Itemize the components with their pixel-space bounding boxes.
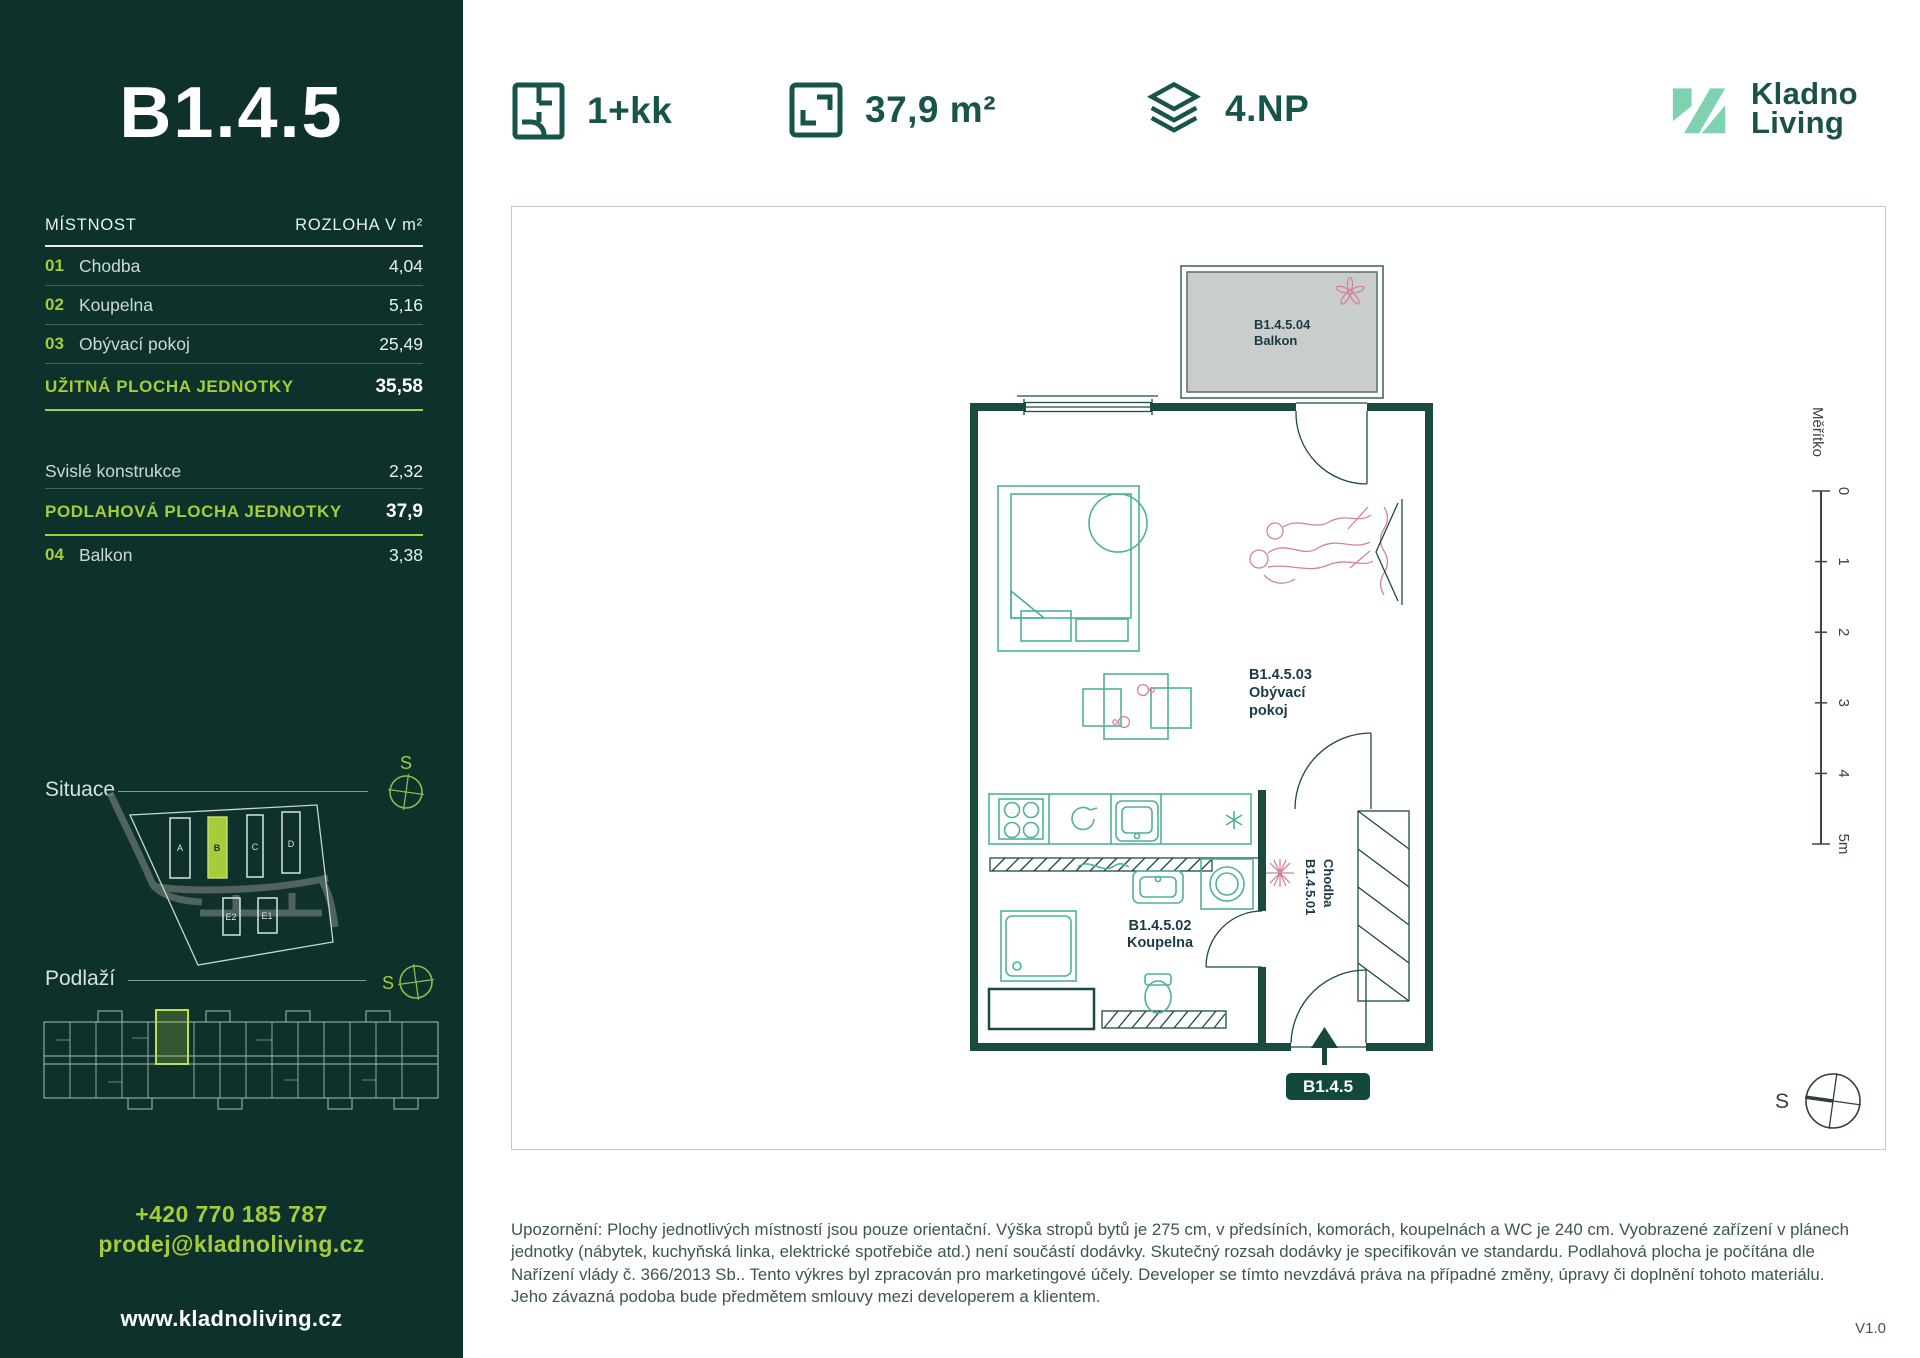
row-area: 3,38 <box>389 545 423 566</box>
flyer-page: B1.4.5 MÍSTNOST ROZLOHA V m² 01 Chodba 4… <box>0 0 1920 1358</box>
plan-compass-icon: S <box>1775 1069 1865 1132</box>
row-name: Obývací pokoj <box>79 334 190 355</box>
bath-wall-hatch-bottom <box>1102 1011 1226 1028</box>
brand-logo: Kladno Living <box>1671 78 1858 138</box>
svg-text:4: 4 <box>1835 769 1852 777</box>
main-area: 1+kk 37,9 m² 4.NP <box>463 0 1920 1358</box>
window-strip <box>1017 396 1158 415</box>
cups <box>1113 685 1154 728</box>
situace-map: A B C D E2 E1 S <box>40 755 460 967</box>
contact-block: +420 770 185 787 prodej@kladnoliving.cz … <box>0 1199 463 1332</box>
situace-compass-icon: S <box>386 755 427 812</box>
table-row: 01 Chodba 4,04 <box>45 247 423 286</box>
floor-area-label: PODLAHOVÁ PLOCHA JEDNOTKY <box>45 502 342 522</box>
hall-plant-icon <box>1266 859 1294 887</box>
balcony-name-label: Balkon <box>1254 333 1297 348</box>
bath-name-label: Koupelna <box>1127 935 1194 951</box>
bed <box>998 486 1139 651</box>
podlazi-unit-highlight <box>156 1010 188 1064</box>
brand-line-2: Living <box>1751 108 1858 137</box>
living-name-label-2: pokoj <box>1249 703 1288 719</box>
layout-value: 1+kk <box>587 90 672 132</box>
row-number: 04 <box>45 545 79 565</box>
floor-area-row: PODLAHOVÁ PLOCHA JEDNOTKY 37,9 <box>45 489 423 536</box>
balcony-door <box>1296 403 1367 484</box>
hall-code-label: B1.4.5.01 <box>1303 859 1318 915</box>
bath-code-label: B1.4.5.02 <box>1129 918 1192 934</box>
room-table: MÍSTNOST ROZLOHA V m² 01 Chodba 4,04 02 … <box>45 216 423 574</box>
unit-code-title: B1.4.5 <box>0 72 463 154</box>
layout-meta: 1+kk <box>512 82 672 140</box>
table-row: 03 Obývací pokoj 25,49 <box>45 325 423 364</box>
email-link[interactable]: prodej@kladnoliving.cz <box>0 1229 463 1259</box>
svg-text:1: 1 <box>1835 557 1852 565</box>
svg-text:S: S <box>400 755 412 773</box>
floor-meta: 4.NP <box>1145 78 1309 140</box>
area-meta: 37,9 m² <box>789 82 996 138</box>
hall-name-label: Chodba <box>1321 859 1336 908</box>
podlazi-floor-map <box>36 1000 448 1136</box>
col-room: MÍSTNOST <box>45 216 137 235</box>
brand-line-1: Kladno <box>1751 79 1858 108</box>
room-table-header: MÍSTNOST ROZLOHA V m² <box>45 216 423 247</box>
kladno-living-mark-icon <box>1671 78 1729 138</box>
svg-text:3: 3 <box>1835 699 1852 707</box>
layers-icon <box>1145 78 1203 140</box>
row-name: Chodba <box>79 256 140 277</box>
brand-logo-text: Kladno Living <box>1751 79 1858 137</box>
curtain-decor <box>1381 507 1388 595</box>
living-code-label: B1.4.5.03 <box>1249 667 1312 683</box>
svg-text:E2: E2 <box>225 912 236 922</box>
floor-value: 4.NP <box>1225 88 1309 130</box>
area-icon <box>789 82 843 138</box>
col-area: ROZLOHA V m² <box>295 216 423 235</box>
podlazi-label: Podlaží <box>45 967 115 991</box>
scale-title: Měřítko <box>1809 407 1826 457</box>
row-number: 03 <box>45 334 79 354</box>
floor-area-value: 37,9 <box>386 501 423 523</box>
svg-text:A: A <box>177 843 183 853</box>
phone-link[interactable]: +420 770 185 787 <box>0 1199 463 1229</box>
sidebar: B1.4.5 MÍSTNOST ROZLOHA V m² 01 Chodba 4… <box>0 0 463 1358</box>
dining-table <box>1083 674 1191 739</box>
outer-walls <box>970 403 1433 1051</box>
row-number: 02 <box>45 295 79 315</box>
svg-text:C: C <box>252 842 259 852</box>
toilet <box>1145 974 1171 1013</box>
row-number: 01 <box>45 256 79 276</box>
disclaimer-text: Upozornění: Plochy jednotlivých místnost… <box>511 1219 1857 1308</box>
svg-text:B: B <box>214 843 221 853</box>
svg-text:S: S <box>382 973 394 993</box>
table-row: 02 Koupelna 5,16 <box>45 286 423 325</box>
fridge-snowflake-icon <box>1226 811 1242 829</box>
entry-arrow-icon <box>1311 1027 1338 1065</box>
row-area: 5,16 <box>389 295 423 316</box>
right-window-marker <box>1376 499 1402 605</box>
svg-text:5m: 5m <box>1835 834 1852 855</box>
svg-text:2: 2 <box>1835 628 1852 636</box>
svg-text:D: D <box>288 839 295 849</box>
podlazi-divider <box>128 980 366 981</box>
interior-walls <box>989 790 1262 1047</box>
version-label: V1.0 <box>511 1320 1886 1337</box>
kitchen-counter <box>989 794 1251 844</box>
floorplan-icon <box>512 82 565 140</box>
people-illustration <box>1250 507 1373 583</box>
hall-door <box>1295 733 1371 809</box>
balcony-code-label: B1.4.5.04 <box>1254 317 1311 332</box>
usable-area-value: 35,58 <box>375 376 423 398</box>
area-value: 37,9 m² <box>865 89 996 131</box>
scale-bar: Měřítko 0 1 2 3 4 5m <box>1809 407 1852 854</box>
washbasin <box>1133 871 1183 903</box>
website-link[interactable]: www.kladnoliving.cz <box>0 1306 463 1332</box>
svg-text:0: 0 <box>1835 487 1852 495</box>
svg-text:E1: E1 <box>261 911 272 921</box>
svg-text:S: S <box>1775 1090 1789 1113</box>
usable-area-row: UŽITNÁ PLOCHA JEDNOTKY 35,58 <box>45 364 423 411</box>
floorplan-drawing: B1.4.5.04 Balkon <box>512 207 1884 1148</box>
vertical-structures-row: Svislé konstrukce 2,32 <box>45 454 423 489</box>
row-name: Balkon <box>79 545 133 566</box>
living-name-label-1: Obývací <box>1249 685 1306 701</box>
vertical-structures-value: 2,32 <box>389 461 423 482</box>
shower <box>1001 911 1076 981</box>
vertical-structures-label: Svislé konstrukce <box>45 461 181 482</box>
row-name: Koupelna <box>79 295 153 316</box>
floorplan-canvas: B1.4.5.04 Balkon <box>511 206 1886 1150</box>
row-area: 25,49 <box>379 334 423 355</box>
washing-machine <box>1201 859 1253 909</box>
balcony-row: 04 Balkon 3,38 <box>45 536 423 574</box>
bath-wall-hatch-top <box>990 858 1212 871</box>
usable-area-label: UŽITNÁ PLOCHA JEDNOTKY <box>45 377 294 397</box>
unit-badge-label: B1.4.5 <box>1303 1077 1353 1096</box>
bathroom-door <box>1206 911 1262 967</box>
row-area: 4,04 <box>389 256 423 277</box>
